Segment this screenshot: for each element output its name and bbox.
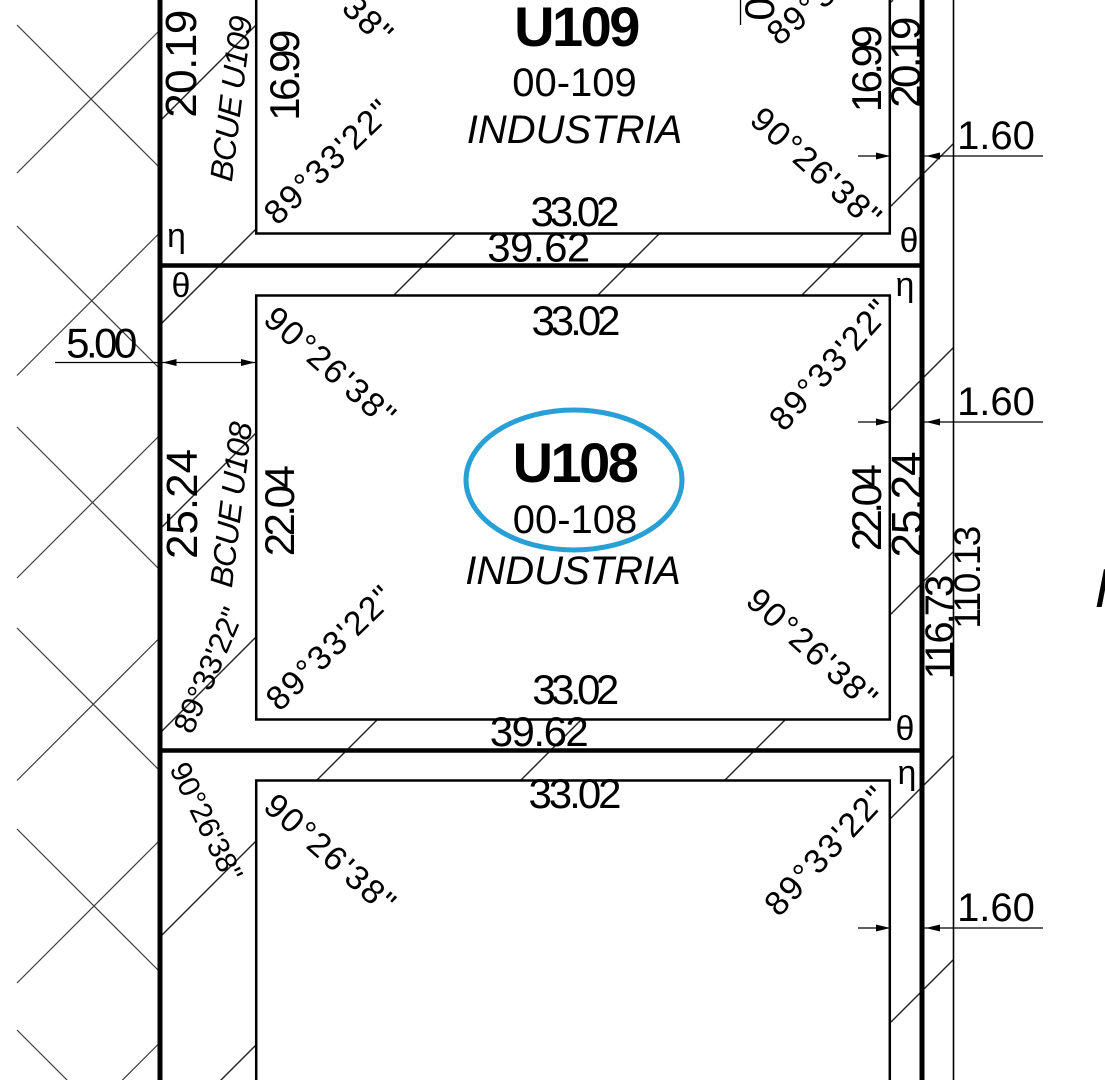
svg-text:η: η	[896, 266, 915, 304]
svg-text:η: η	[167, 217, 186, 255]
svg-text:33.02: 33.02	[532, 666, 618, 713]
svg-text:5.00: 5.00	[66, 320, 136, 367]
svg-text:I: I	[1094, 557, 1105, 619]
svg-text:INDUSTRIA: INDUSTRIA	[467, 108, 683, 152]
svg-text:39.62: 39.62	[490, 708, 588, 755]
svg-text:θ: θ	[172, 267, 191, 305]
svg-text:110.13: 110.13	[947, 527, 988, 628]
svg-text:U108: U108	[513, 431, 638, 494]
svg-text:00-109: 00-109	[512, 61, 637, 105]
svg-text:η: η	[898, 754, 917, 792]
svg-text:25.24: 25.24	[158, 449, 207, 559]
svg-text:20.19: 20.19	[157, 10, 206, 118]
svg-text:00-108: 00-108	[513, 498, 638, 542]
svg-text:22.04: 22.04	[256, 466, 303, 557]
svg-text:1.60: 1.60	[957, 380, 1035, 424]
svg-text:33.02: 33.02	[528, 770, 620, 817]
svg-text:INDUSTRIA: INDUSTRIA	[465, 549, 681, 593]
svg-text:25.24: 25.24	[883, 452, 932, 558]
svg-text:θ: θ	[900, 222, 919, 260]
svg-text:33.02: 33.02	[531, 297, 619, 344]
svg-text:0: 0	[736, 0, 783, 21]
svg-text:θ: θ	[896, 710, 915, 748]
svg-text:1.60: 1.60	[957, 886, 1035, 930]
svg-text:U109: U109	[514, 0, 639, 58]
svg-text:16.99: 16.99	[261, 31, 308, 121]
svg-text:1.60: 1.60	[957, 114, 1035, 158]
svg-text:20.19: 20.19	[882, 18, 929, 108]
svg-text:39.62: 39.62	[487, 224, 590, 271]
